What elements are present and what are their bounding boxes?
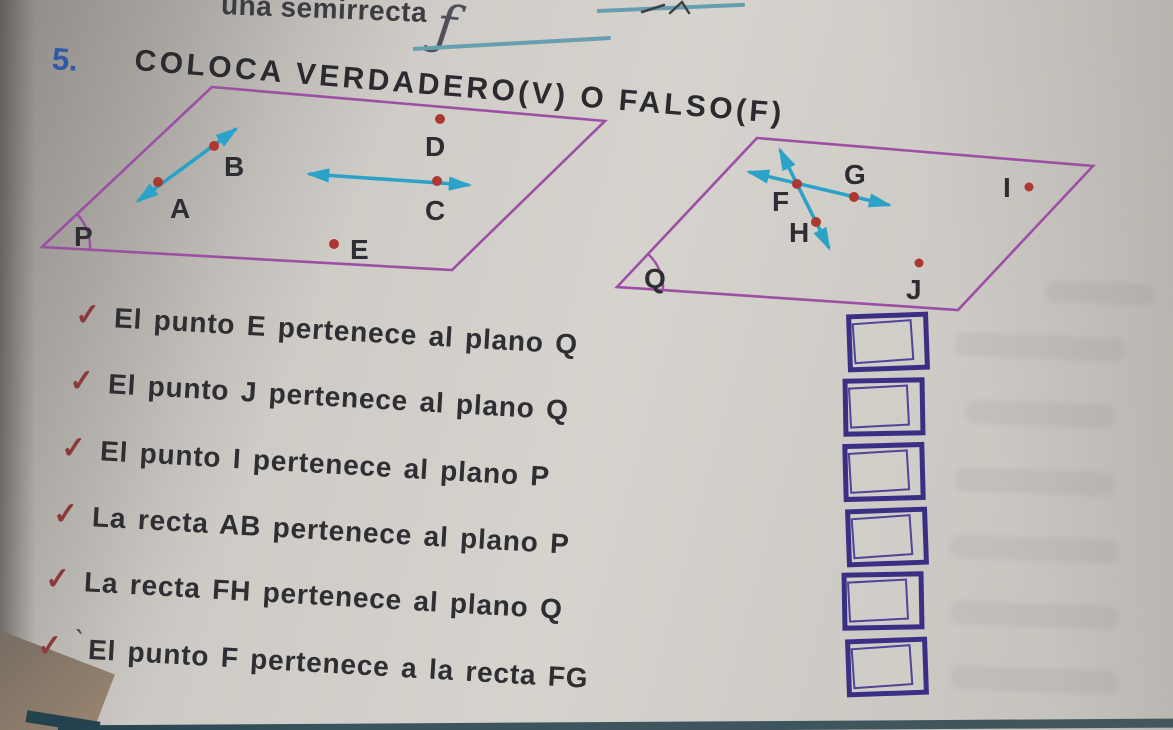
answer-box-3 xyxy=(842,442,925,502)
statement-row-3: ✓ El punto I pertenece al plano P xyxy=(60,433,551,496)
point-d-label: D xyxy=(425,131,445,162)
plane-q-outline xyxy=(617,138,1093,310)
answer-box-5 xyxy=(842,571,925,630)
statement-text: El punto E pertenece al plano Q xyxy=(113,302,579,361)
bottom-border-bar xyxy=(58,719,1173,730)
plane-q: Q F G H I J xyxy=(617,138,1093,310)
fill-in-label: una semirrecta xyxy=(220,0,427,29)
plane-p: P A B C D E xyxy=(42,87,605,270)
statement-row-2: ✓ El punto J pertenece al plano Q xyxy=(68,366,570,430)
line-c xyxy=(309,174,469,185)
point-f-label: F xyxy=(772,186,789,217)
statement-row-1: ✓ El punto E pertenece al plano Q xyxy=(74,300,579,364)
line-ab xyxy=(138,129,236,201)
bleedthrough-smudge xyxy=(965,399,1116,428)
bleedthrough-smudge xyxy=(955,467,1116,497)
answer-box-1 xyxy=(846,312,930,373)
handwritten-scribble xyxy=(638,0,718,16)
statement-text: El punto F pertenece a la recta FG xyxy=(87,634,589,695)
answer-box-4 xyxy=(845,507,929,568)
checkmark-icon: ✓ xyxy=(44,561,71,597)
point-i-dot xyxy=(1025,183,1034,192)
plane-p-label: P xyxy=(74,221,93,252)
plane-q-corner-arc xyxy=(648,254,663,290)
point-d-dot xyxy=(435,114,445,124)
answer-box-6 xyxy=(845,637,929,698)
handwritten-tick: ˋ xyxy=(73,625,87,655)
plane-p-outline xyxy=(42,87,605,270)
line-fh xyxy=(780,150,829,248)
point-f-dot xyxy=(792,179,802,189)
plane-p-corner-arc xyxy=(77,214,90,250)
line-fg xyxy=(749,172,889,205)
checkmark-icon: ✓ xyxy=(52,496,79,532)
answer-box-inner xyxy=(847,579,909,623)
page-left-edge-shadow xyxy=(0,0,36,730)
checkmark-icon: ✓ xyxy=(36,628,63,664)
statement-text: La recta AB pertenece al plano P xyxy=(91,501,570,560)
point-i-label: I xyxy=(1003,172,1011,203)
point-j-label: J xyxy=(906,274,922,305)
answer-box-inner xyxy=(851,644,914,689)
bleedthrough-smudge xyxy=(950,665,1119,695)
point-e-dot xyxy=(329,239,339,249)
point-a-dot xyxy=(153,177,163,187)
point-j-dot xyxy=(915,259,924,268)
bleedthrough-smudge xyxy=(950,600,1119,630)
answer-box-inner xyxy=(848,385,910,429)
statement-row-6: ✓ ˋ El punto F pertenece a la recta FG xyxy=(36,631,589,698)
point-e-label: E xyxy=(350,234,369,265)
statement-text: La recta FH pertenece al plano Q xyxy=(83,566,563,626)
statement-text: El punto I pertenece al plano P xyxy=(99,435,551,493)
point-h-dot xyxy=(811,217,821,227)
answer-box-inner xyxy=(851,514,914,559)
point-g-label: G xyxy=(844,159,866,190)
point-g-dot xyxy=(849,192,859,202)
statement-text: El punto J pertenece al plano Q xyxy=(107,368,569,427)
checkmark-icon: ✓ xyxy=(60,430,87,466)
worksheet-photo: una semirrecta ƒ 5. COLOCA VERDADERO(V) … xyxy=(0,0,1173,730)
exercise-title: COLOCA VERDADERO(V) O FALSO(F) xyxy=(133,44,786,131)
point-c-dot xyxy=(432,176,442,186)
checkmark-icon: ✓ xyxy=(68,363,95,399)
plane-q-label: Q xyxy=(644,263,666,294)
exercise-number: 5. xyxy=(51,41,79,79)
bleedthrough-smudge xyxy=(955,332,1126,362)
answer-box-inner xyxy=(848,449,910,494)
statement-row-4: ✓ La recta AB pertenece al plano P xyxy=(52,499,571,564)
point-b-label: B xyxy=(224,151,244,182)
handwritten-answer: ƒ xyxy=(432,0,460,58)
point-a-label: A xyxy=(170,193,190,224)
answer-box-2 xyxy=(843,377,926,436)
point-b-dot xyxy=(209,141,219,151)
checkmark-icon: ✓ xyxy=(74,297,101,333)
bleedthrough-smudge xyxy=(1045,280,1156,306)
bleedthrough-smudge xyxy=(950,534,1119,564)
point-h-label: H xyxy=(789,217,809,248)
statement-row-5: ✓ La recta FH pertenece al plano Q xyxy=(44,564,564,629)
point-c-label: C xyxy=(425,195,445,226)
answer-box-inner xyxy=(852,319,915,364)
